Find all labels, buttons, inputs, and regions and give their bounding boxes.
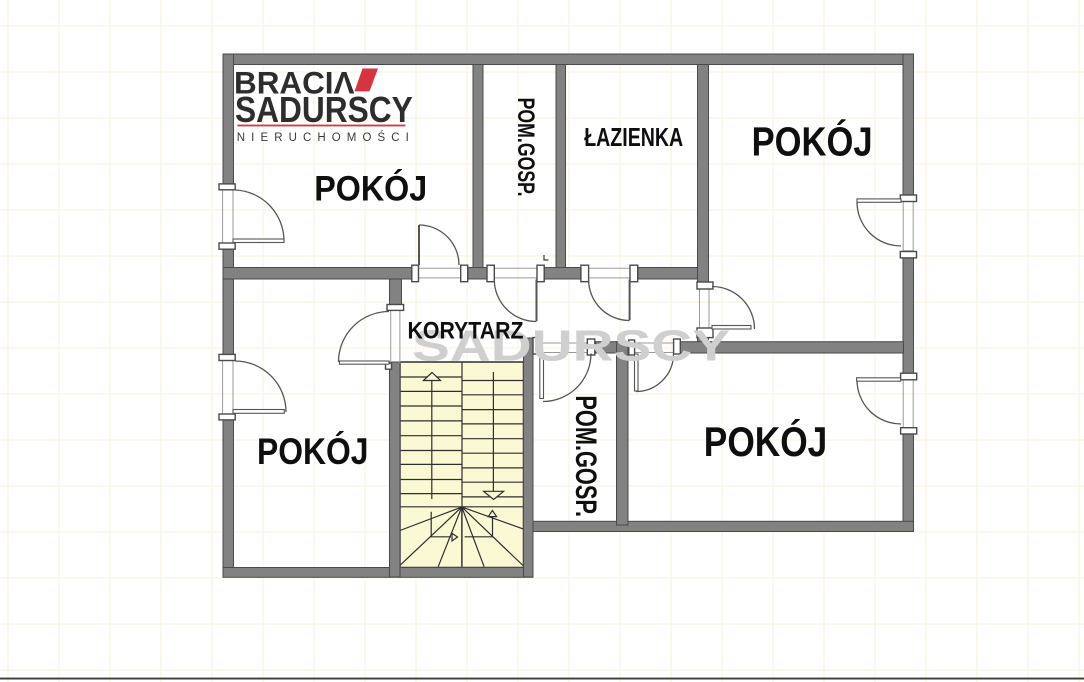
svg-text:POM.GOSP.: POM.GOSP. — [569, 395, 602, 517]
svg-text:SADURSCY: SADURSCY — [235, 90, 413, 130]
svg-text:POKÓJ: POKÓJ — [752, 119, 873, 165]
svg-text:KORYTARZ: KORYTARZ — [408, 317, 524, 344]
svg-text:ŁAZIENKA: ŁAZIENKA — [584, 124, 683, 152]
svg-text:POM.GOSP.: POM.GOSP. — [512, 98, 539, 197]
svg-text:POKÓJ: POKÓJ — [314, 169, 427, 209]
svg-text:NIERUCHOMOŚCI: NIERUCHOMOŚCI — [237, 131, 409, 144]
svg-text:POKÓJ: POKÓJ — [257, 430, 369, 472]
svg-text:POKÓJ: POKÓJ — [704, 419, 828, 465]
